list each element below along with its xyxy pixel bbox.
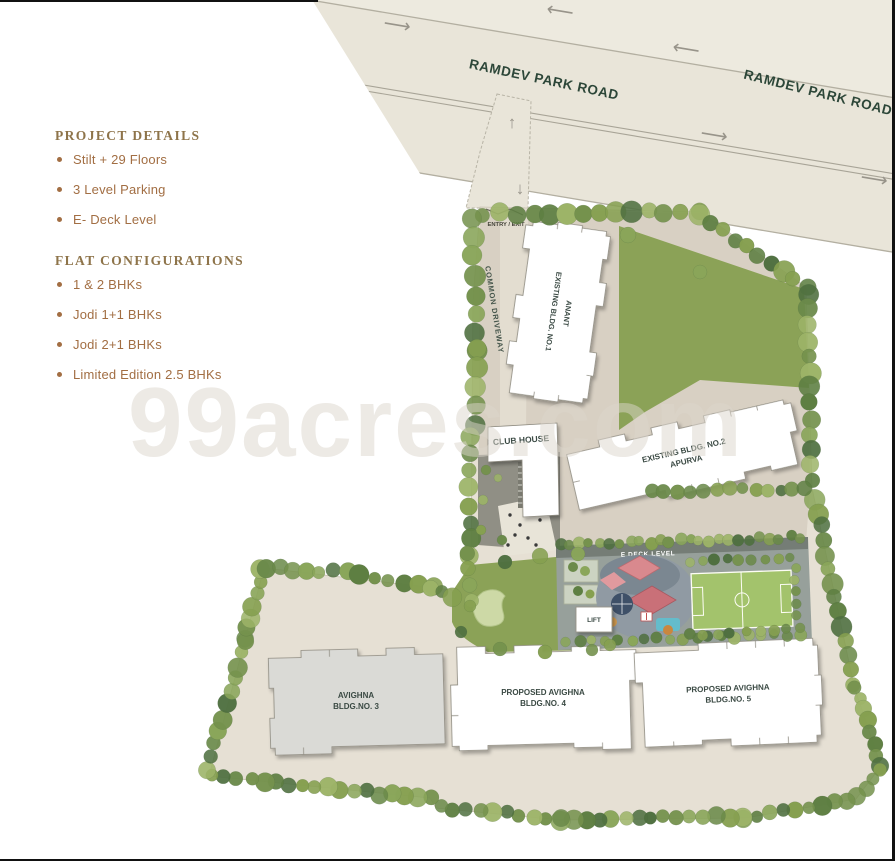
tree-icon <box>493 642 507 656</box>
building-avighna-4 <box>450 643 639 754</box>
tree-icon <box>761 555 770 564</box>
tree-icon <box>814 517 830 533</box>
tree-icon <box>801 394 818 411</box>
tree-icon <box>656 484 671 499</box>
tree-icon <box>802 411 820 429</box>
tree-icon <box>672 204 688 220</box>
site-plan-page: ⟶ ⟵ ⟵ ⟶ ⟶ RAMDEV PARK ROAD RAMDEV PARK R… <box>0 0 895 861</box>
sports-court <box>691 570 793 629</box>
tree-icon <box>501 805 515 819</box>
tree-icon <box>716 222 730 236</box>
tree-icon <box>246 772 259 785</box>
tree-icon <box>685 558 695 568</box>
tree-icon <box>468 306 485 323</box>
tree-icon <box>797 481 812 496</box>
tree-icon <box>564 540 574 550</box>
info-panel: PROJECT DETAILS Stilt + 29 Floors 3 Leve… <box>55 128 305 408</box>
tree-icon <box>675 533 687 545</box>
tree-icon <box>754 531 765 542</box>
tree-icon <box>684 628 695 639</box>
tree-icon <box>204 750 218 764</box>
tree-icon <box>462 245 482 265</box>
tree-icon <box>532 548 548 564</box>
tree-icon <box>326 563 341 578</box>
list-item: 1 & 2 BHKs <box>55 277 305 292</box>
lane-arrow-left-icon: ⟵ <box>671 37 701 62</box>
tree-icon <box>468 339 486 357</box>
tree-icon <box>773 534 783 544</box>
tree-icon <box>749 248 765 264</box>
tree-icon <box>621 201 643 223</box>
tree-icon <box>467 287 486 306</box>
tree-icon <box>840 646 858 664</box>
svg-text:PROPOSED AVIGHNA: PROPOSED AVIGHNA <box>501 688 585 697</box>
tree-icon <box>349 564 369 584</box>
tree-icon <box>724 628 735 639</box>
tree-icon <box>575 635 587 647</box>
tree-icon <box>462 209 482 229</box>
tree-icon <box>695 810 710 825</box>
lift-label: LIFT <box>587 617 601 624</box>
tree-icon <box>462 445 479 462</box>
tree-icon <box>213 710 232 729</box>
tree-icon <box>587 635 596 644</box>
tree-icon <box>654 204 672 222</box>
tree-icon <box>663 537 675 549</box>
list-item: E- Deck Level <box>55 212 305 227</box>
svg-text:AVIGHNA: AVIGHNA <box>338 691 375 700</box>
tree-icon <box>777 803 790 816</box>
tree-icon <box>746 555 757 566</box>
tree-icon <box>312 566 325 579</box>
tree-icon <box>604 639 616 651</box>
tree-icon <box>761 484 774 497</box>
tree-icon <box>459 477 478 496</box>
tree-icon <box>742 627 751 636</box>
photo-edge <box>0 0 318 2</box>
tree-icon <box>464 265 486 287</box>
list-item: Stilt + 29 Floors <box>55 152 305 167</box>
tree-icon <box>723 554 732 563</box>
tree-icon <box>708 554 720 566</box>
tree-icon <box>795 623 805 633</box>
list-item: 3 Level Parking <box>55 182 305 197</box>
tree-icon <box>575 205 593 223</box>
tree-icon <box>455 626 467 638</box>
tree-icon <box>693 536 703 546</box>
tree-icon <box>670 485 685 500</box>
tree-icon <box>466 357 488 379</box>
tree-icon <box>381 574 394 587</box>
driveway-arrow-down-icon: ↓ <box>516 179 525 198</box>
tree-icon <box>474 803 488 817</box>
tree-icon <box>798 316 816 334</box>
tree-icon <box>696 484 711 499</box>
svg-text:BLDG.NO. 4: BLDG.NO. 4 <box>520 699 566 708</box>
tree-icon <box>693 265 707 279</box>
tree-icon <box>791 610 801 620</box>
tree-icon <box>792 563 801 572</box>
flat-configurations-list: 1 & 2 BHKs Jodi 1+1 BHKs Jodi 2+1 BHKs L… <box>55 277 305 382</box>
tree-icon <box>443 588 462 607</box>
tree-icon <box>620 811 634 825</box>
tree-icon <box>684 486 697 499</box>
tree-icon <box>769 625 780 636</box>
list-item: Jodi 1+1 BHKs <box>55 307 305 322</box>
tree-icon <box>790 575 800 585</box>
tree-icon <box>464 600 476 612</box>
tree-icon <box>791 599 801 609</box>
tree-icon <box>703 536 715 548</box>
tree-icon <box>669 810 684 825</box>
tree-icon <box>460 561 475 576</box>
tree-icon <box>586 644 598 656</box>
tree-icon <box>785 553 794 562</box>
tree-icon <box>615 539 624 548</box>
tree-icon <box>697 630 708 641</box>
flat-configurations-title: FLAT CONFIGURATIONS <box>55 253 305 269</box>
tree-icon <box>462 463 477 478</box>
tree-icon <box>498 555 512 569</box>
tree-icon <box>229 771 243 785</box>
tree-icon <box>620 227 636 243</box>
tree-icon <box>751 811 763 823</box>
tree-icon <box>843 662 859 678</box>
tree-icon <box>651 632 663 644</box>
tree-icon <box>698 556 707 565</box>
project-details-list: Stilt + 29 Floors 3 Level Parking E- Dec… <box>55 152 305 227</box>
tree-icon <box>791 586 801 596</box>
lift: LIFT <box>576 607 612 632</box>
tree-icon <box>744 535 754 545</box>
project-details-title: PROJECT DETAILS <box>55 128 305 144</box>
tree-icon <box>798 298 818 318</box>
tree-icon <box>538 645 552 659</box>
tree-icon <box>732 554 743 565</box>
tree-icon <box>497 535 507 545</box>
tree-icon <box>508 206 526 224</box>
tree-icon <box>296 779 309 792</box>
tree-icon <box>737 482 748 493</box>
list-item: Limited Edition 2.5 BHKs <box>55 367 305 382</box>
tree-icon <box>713 630 723 640</box>
tree-icon <box>795 533 805 543</box>
tree-icon <box>369 572 381 584</box>
tree-icon <box>476 525 486 535</box>
planters <box>564 560 598 604</box>
lane-arrow-right-icon: ⟶ <box>699 123 729 148</box>
tree-icon <box>711 483 725 497</box>
tree-icon <box>561 637 571 647</box>
tree-icon <box>785 271 800 286</box>
tree-icon <box>481 465 491 475</box>
list-item: Jodi 2+1 BHKs <box>55 337 305 352</box>
tree-icon <box>634 536 644 546</box>
tree-icon <box>826 589 841 604</box>
tree-icon <box>467 396 486 415</box>
tree-icon <box>732 534 744 546</box>
tree-icon <box>656 810 669 823</box>
tree-icon <box>639 634 649 644</box>
tree-icon <box>762 805 777 820</box>
tree-icon <box>756 626 767 637</box>
tree-icon <box>628 636 638 646</box>
tree-icon <box>665 635 675 645</box>
tree-icon <box>781 624 791 634</box>
tree-icon <box>552 809 569 826</box>
tree-icon <box>801 455 819 473</box>
tree-icon <box>571 547 585 561</box>
svg-text:BLDG.NO. 5: BLDG.NO. 5 <box>705 694 752 705</box>
tree-icon <box>802 349 817 364</box>
lane-arrow-right-icon: ⟶ <box>859 167 889 192</box>
tree-icon <box>460 498 478 516</box>
tree-icon <box>527 810 543 826</box>
tree-icon <box>774 554 784 564</box>
tree-icon <box>308 780 321 793</box>
tree-icon <box>494 474 502 482</box>
tree-icon <box>347 784 361 798</box>
tree-icon <box>465 377 486 398</box>
tree-icon <box>462 578 477 593</box>
tree-icon <box>632 810 648 826</box>
tree-icon <box>228 658 248 678</box>
tree-icon <box>490 203 509 222</box>
lane-arrow-right-icon: ⟶ <box>382 13 412 38</box>
tree-icon <box>458 802 472 816</box>
driveway-arrow-up-icon: ↑ <box>508 113 517 132</box>
tree-icon <box>461 427 480 446</box>
tree-icon <box>604 538 615 549</box>
tree-icon <box>460 546 475 561</box>
tree-icon <box>255 773 274 792</box>
tree-icon <box>682 810 695 823</box>
tree-icon <box>463 227 485 249</box>
tree-icon <box>224 683 240 699</box>
tree-icon <box>813 796 833 816</box>
tree-icon <box>319 777 338 796</box>
tree-icon <box>198 762 215 779</box>
svg-text:BLDG.NO. 3: BLDG.NO. 3 <box>333 702 379 711</box>
tree-icon <box>478 495 488 505</box>
tree-icon <box>723 481 738 496</box>
tree-icon <box>803 802 815 814</box>
tree-icon <box>583 538 592 547</box>
